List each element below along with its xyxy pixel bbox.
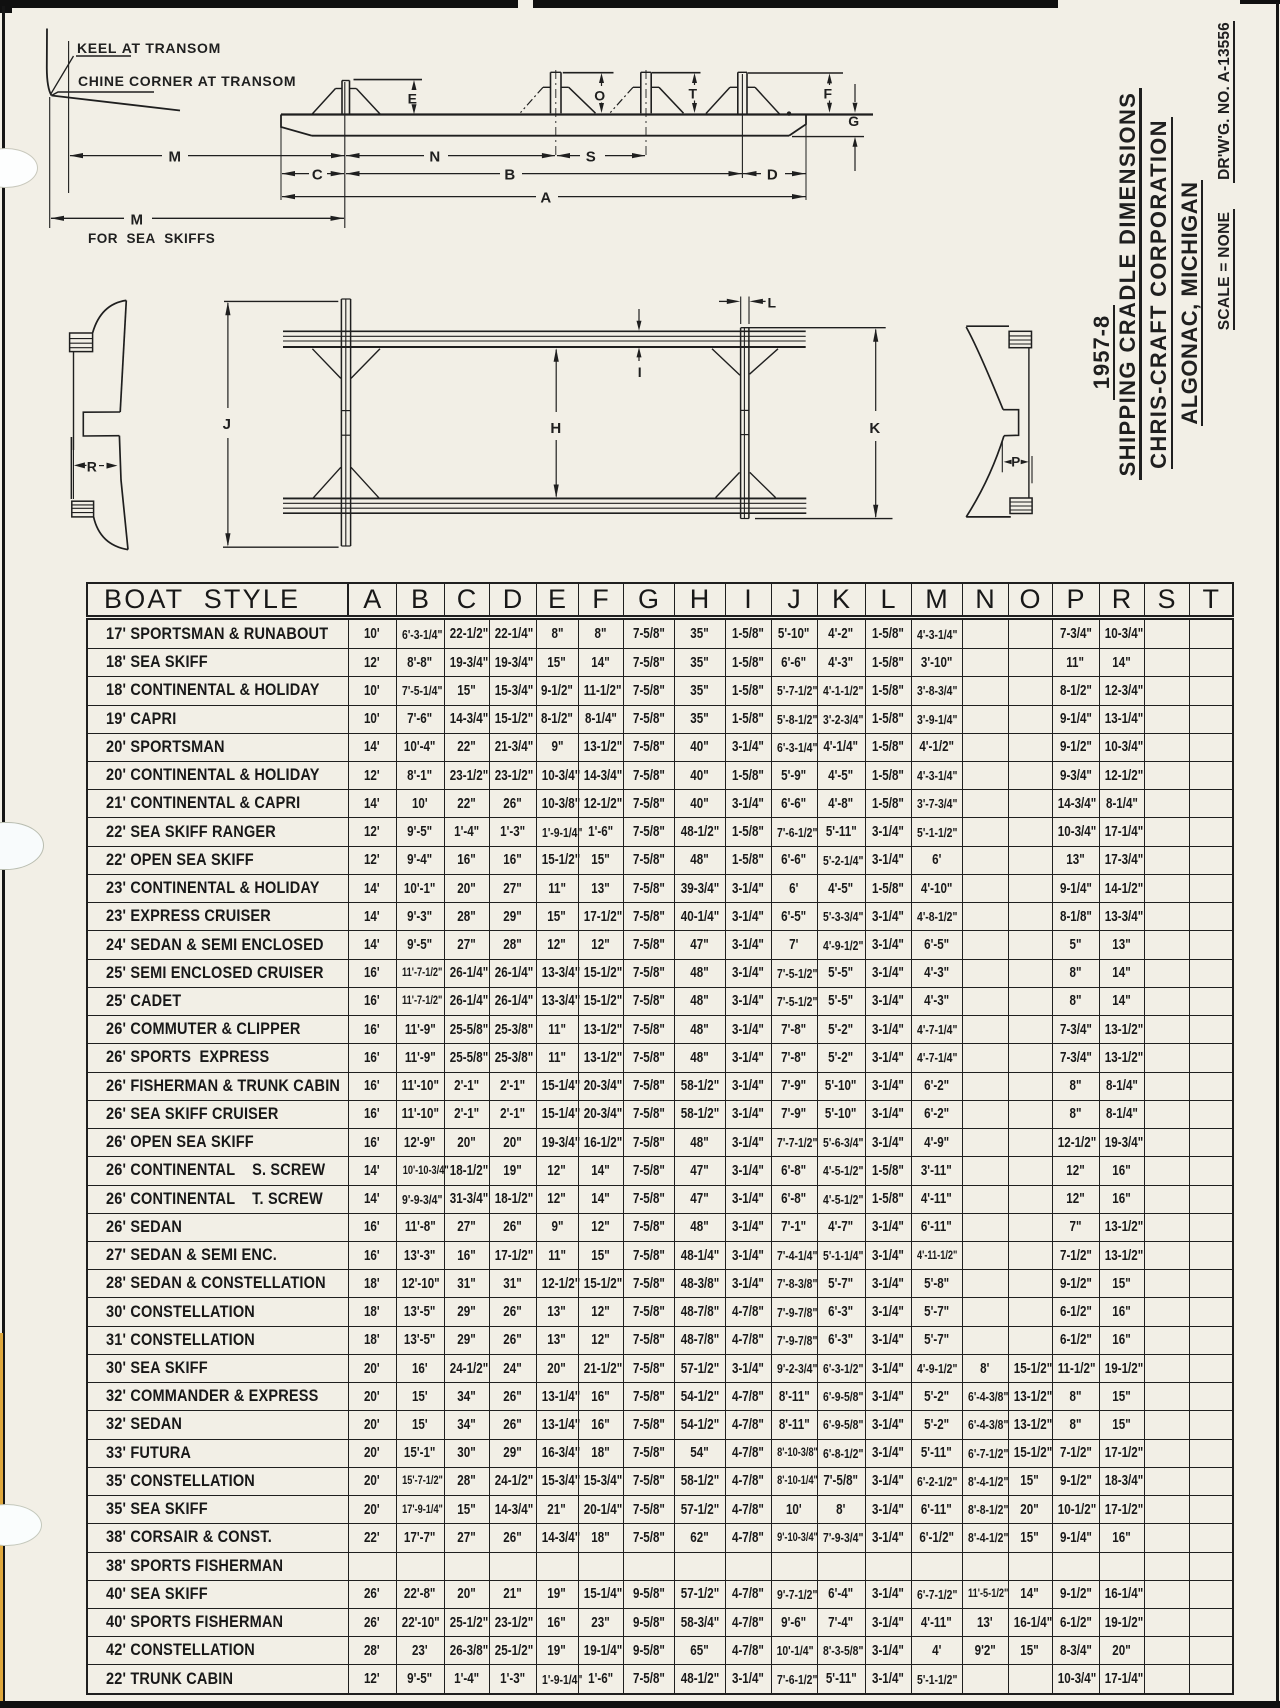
svg-text:H: H: [550, 420, 561, 437]
svg-text:R: R: [87, 459, 98, 475]
svg-text:M: M: [169, 149, 182, 166]
svg-text:A: A: [540, 190, 551, 207]
svg-text:C: C: [312, 167, 323, 184]
svg-text:L: L: [767, 295, 776, 311]
svg-text:K: K: [869, 420, 880, 437]
svg-text:D: D: [767, 167, 778, 184]
svg-text:I: I: [638, 364, 642, 380]
svg-text:O: O: [594, 88, 605, 104]
svg-text:T: T: [688, 86, 697, 102]
svg-text:G: G: [848, 113, 859, 129]
svg-text:J: J: [223, 416, 232, 433]
svg-text:E: E: [408, 91, 418, 107]
svg-text:CHINE CORNER AT TRANSOM: CHINE CORNER AT TRANSOM: [78, 73, 296, 89]
svg-text:S: S: [586, 149, 597, 166]
svg-text:FOR SEA SKIFFS: FOR SEA SKIFFS: [88, 231, 215, 246]
svg-text:M: M: [131, 211, 144, 228]
svg-text:P: P: [1011, 455, 1021, 470]
svg-text:KEEL AT TRANSOM: KEEL AT TRANSOM: [77, 40, 221, 56]
svg-text:F: F: [823, 86, 832, 102]
svg-text:B: B: [504, 167, 515, 184]
svg-text:N: N: [429, 149, 440, 166]
